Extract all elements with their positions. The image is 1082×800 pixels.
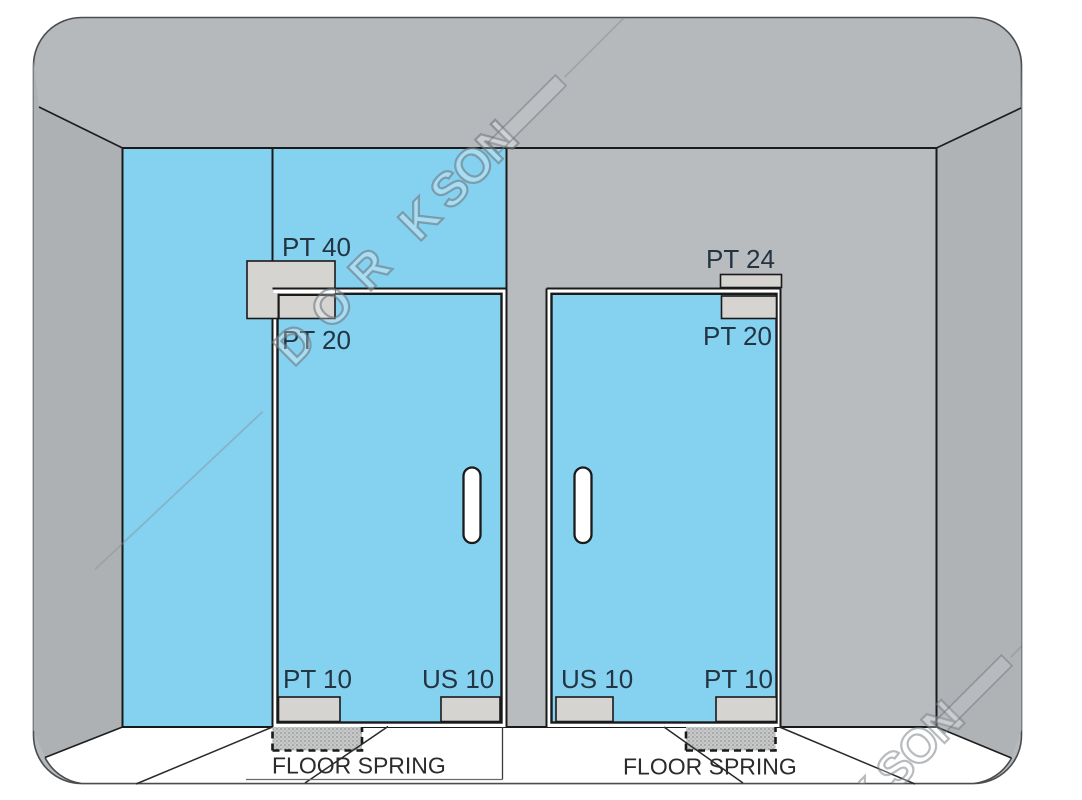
svg-text:PT 10: PT 10 — [704, 664, 773, 694]
svg-text:PT 24: PT 24 — [706, 244, 775, 274]
svg-text:PT 20: PT 20 — [703, 321, 772, 351]
svg-text:FLOOR SPRING: FLOOR SPRING — [623, 754, 797, 780]
svg-text:PT 40: PT 40 — [282, 232, 351, 262]
svg-text:FLOOR SPRING: FLOOR SPRING — [272, 753, 446, 779]
svg-text:US 10: US 10 — [422, 664, 494, 694]
svg-text:US 10: US 10 — [561, 664, 633, 694]
svg-text:PT 10: PT 10 — [283, 664, 352, 694]
